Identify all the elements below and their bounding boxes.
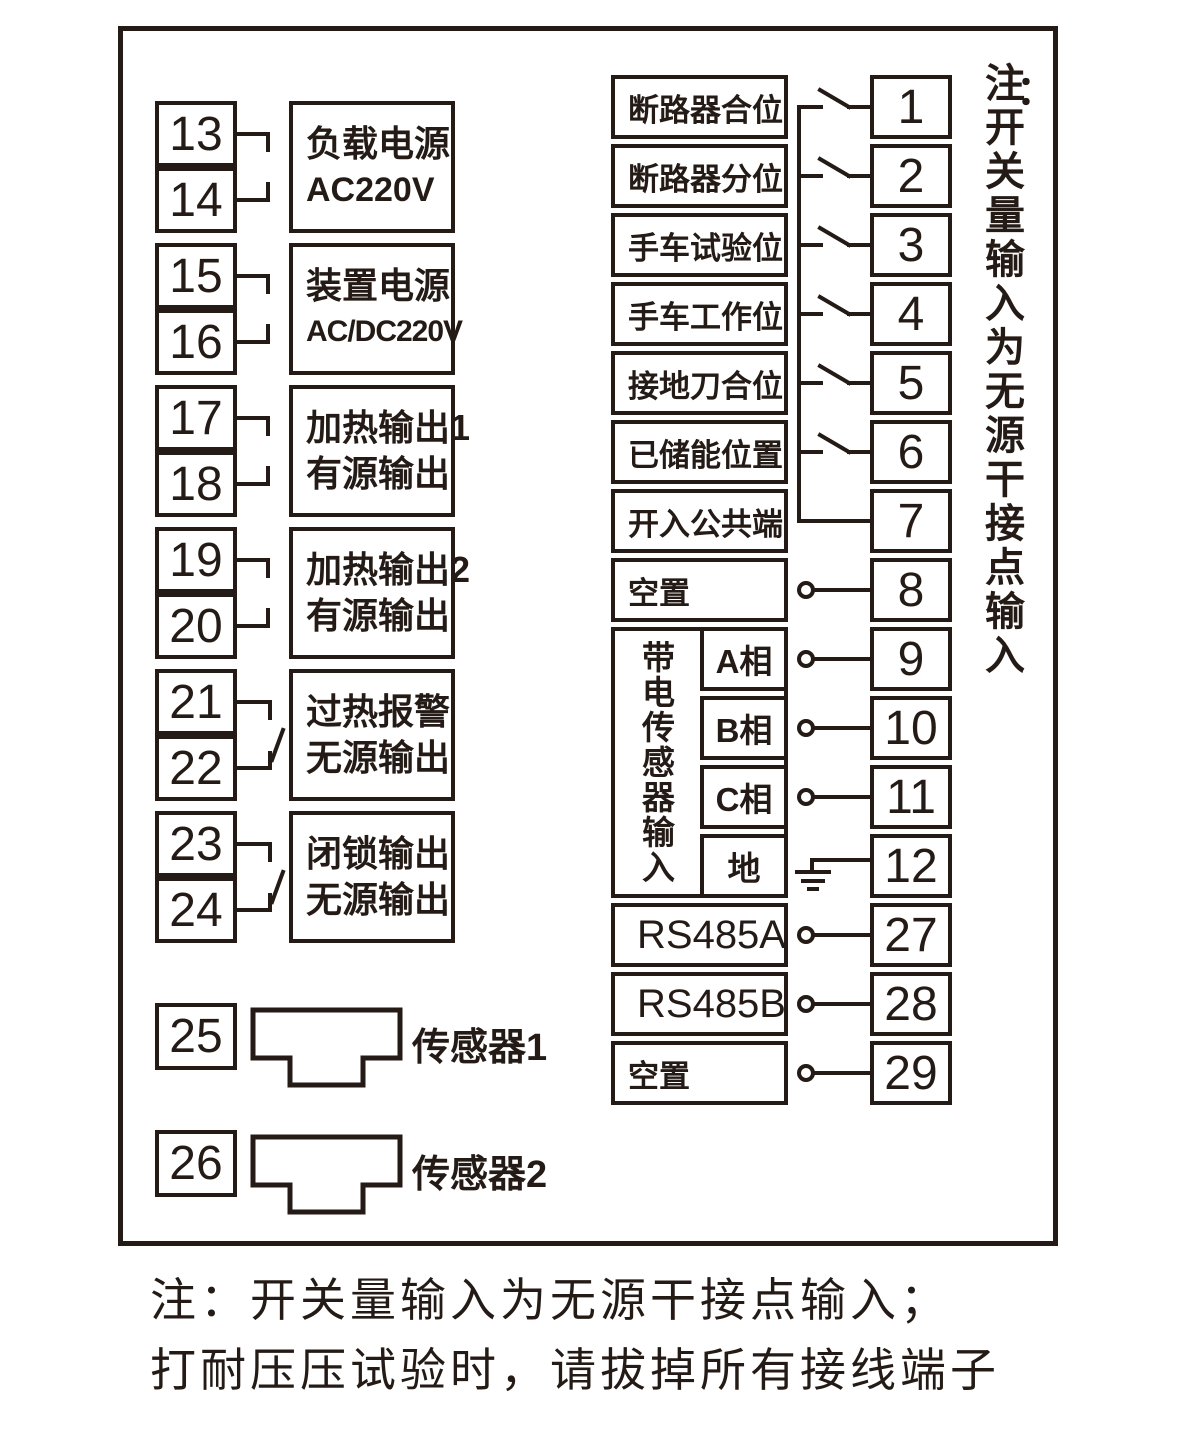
terminal-26: 26 (155, 1130, 237, 1197)
contact-pair-21-22 (237, 702, 283, 768)
label-truck-test-pos: 手车试验位 (611, 213, 788, 277)
terminal-7: 7 (870, 489, 952, 553)
switch-contact-2 (799, 159, 870, 176)
terminal-6: 6 (870, 420, 952, 484)
side-note-body: 开关量输入为无源干接点输入 (979, 106, 1023, 678)
label-phase-c: C相 (700, 765, 788, 829)
hook-pair-13-14 (237, 134, 268, 200)
label-heat-output-2: 加热输出2 有源输出 (289, 527, 455, 659)
label-line1: 加热输出2 (306, 547, 470, 593)
switch-contact-4 (799, 297, 870, 314)
label-line2: 无源输出 (306, 877, 450, 923)
label-load-power: 负载电源 AC220V (289, 101, 455, 233)
terminal-18: 18 (155, 451, 237, 517)
terminal-16: 16 (155, 309, 237, 375)
label-ground-knife-closed: 接地刀合位 (611, 351, 788, 415)
label-truck-work-pos: 手车工作位 (611, 282, 788, 346)
terminal-11: 11 (870, 765, 952, 829)
lead-circle-9 (799, 652, 813, 666)
switch-contact-3 (799, 228, 870, 245)
lead-circle-29 (799, 1066, 813, 1080)
label-line1: 过热报警 (306, 689, 450, 735)
sensor2-label: 传感器2 (412, 1143, 547, 1198)
label-lockout-output: 闭锁输出 无源输出 (289, 811, 455, 943)
terminal-19: 19 (155, 527, 237, 593)
terminal-25: 25 (155, 1003, 237, 1070)
label-rs485b: RS485B (611, 972, 788, 1036)
label-phase-a: A相 (700, 627, 788, 691)
terminal-3: 3 (870, 213, 952, 277)
live-sensor-title-text: 带电传感器输入 (632, 640, 680, 885)
label-line2: 有源输出 (306, 451, 450, 497)
label-line2: 无源输出 (306, 735, 450, 781)
bottom-note-line2: 打耐压压试验时，请拔掉所有接线端子 (150, 1344, 1000, 1397)
terminal-14: 14 (155, 167, 237, 233)
hook-pair-17-18 (237, 418, 268, 484)
bottom-note-line1: 注：开关量输入为无源干接点输入； (150, 1274, 950, 1327)
lead-circle-27 (799, 928, 813, 942)
terminal-9: 9 (870, 627, 952, 691)
label-line1: 装置电源 (306, 263, 450, 309)
terminal-13: 13 (155, 101, 237, 167)
terminal-2: 2 (870, 144, 952, 208)
label-breaker-open: 断路器分位 (611, 144, 788, 208)
ground-icon (797, 860, 870, 889)
terminal-24: 24 (155, 877, 237, 943)
label-rs485a: RS485A (611, 903, 788, 967)
terminal-15: 15 (155, 243, 237, 309)
hook-pair-15-16 (237, 276, 268, 342)
sensor1-label: 传感器1 (412, 1016, 547, 1071)
terminal-4: 4 (870, 282, 952, 346)
terminal-8: 8 (870, 558, 952, 622)
label-line1: 加热输出1 (306, 405, 470, 451)
terminal-23: 23 (155, 811, 237, 877)
side-note: 注开关量输入为无源干接点输入 (972, 62, 1030, 722)
lead-circle-10 (799, 721, 813, 735)
sensor2-connector-icon (253, 1137, 400, 1212)
hook-pair-19-20 (237, 560, 268, 626)
contact-pair-23-24 (237, 844, 283, 910)
live-sensor-group-title: 带电传感器输入 (611, 627, 700, 898)
label-line2: AC220V (306, 167, 435, 213)
label-spare-29: 空置 (611, 1041, 788, 1105)
terminal-20: 20 (155, 593, 237, 659)
terminal-10: 10 (870, 696, 952, 760)
wiring-diagram: 13 14 15 16 17 18 19 20 21 22 23 24 负载电源… (0, 0, 1180, 1432)
sensor1-connector-icon (253, 1010, 400, 1085)
terminal-5: 5 (870, 351, 952, 415)
label-line2: 有源输出 (306, 593, 450, 639)
label-overheat-alarm: 过热报警 无源输出 (289, 669, 455, 801)
label-breaker-closed: 断路器合位 (611, 75, 788, 139)
switch-contact-6 (799, 435, 870, 452)
side-note-colon: ： (1016, 58, 1056, 116)
terminal-17: 17 (155, 385, 237, 451)
label-phase-b: B相 (700, 696, 788, 760)
terminal-27: 27 (870, 903, 952, 967)
label-line1: 负载电源 (306, 121, 450, 167)
side-note-text: 注开关量输入为无源干接点输入 (972, 62, 1030, 678)
lead-circle-28 (799, 997, 813, 1011)
label-di-common: 开入公共端 (611, 489, 788, 553)
terminal-21: 21 (155, 669, 237, 735)
lead-circle-8 (799, 583, 813, 597)
switch-contact-5 (799, 366, 870, 383)
label-energy-stored: 已储能位置 (611, 420, 788, 484)
switch-contact-1 (799, 90, 870, 107)
label-line1: 闭锁输出 (306, 831, 450, 877)
terminal-1: 1 (870, 75, 952, 139)
label-spare-8: 空置 (611, 558, 788, 622)
terminal-22: 22 (155, 735, 237, 801)
terminal-28: 28 (870, 972, 952, 1036)
lead-circle-11 (799, 790, 813, 804)
label-heat-output-1: 加热输出1 有源输出 (289, 385, 455, 517)
terminal-12: 12 (870, 834, 952, 898)
terminal-29: 29 (870, 1041, 952, 1105)
label-device-power: 装置电源 AC/DC220V (289, 243, 455, 375)
label-line2: AC/DC220V (306, 309, 462, 355)
label-earth: 地 (700, 834, 788, 898)
